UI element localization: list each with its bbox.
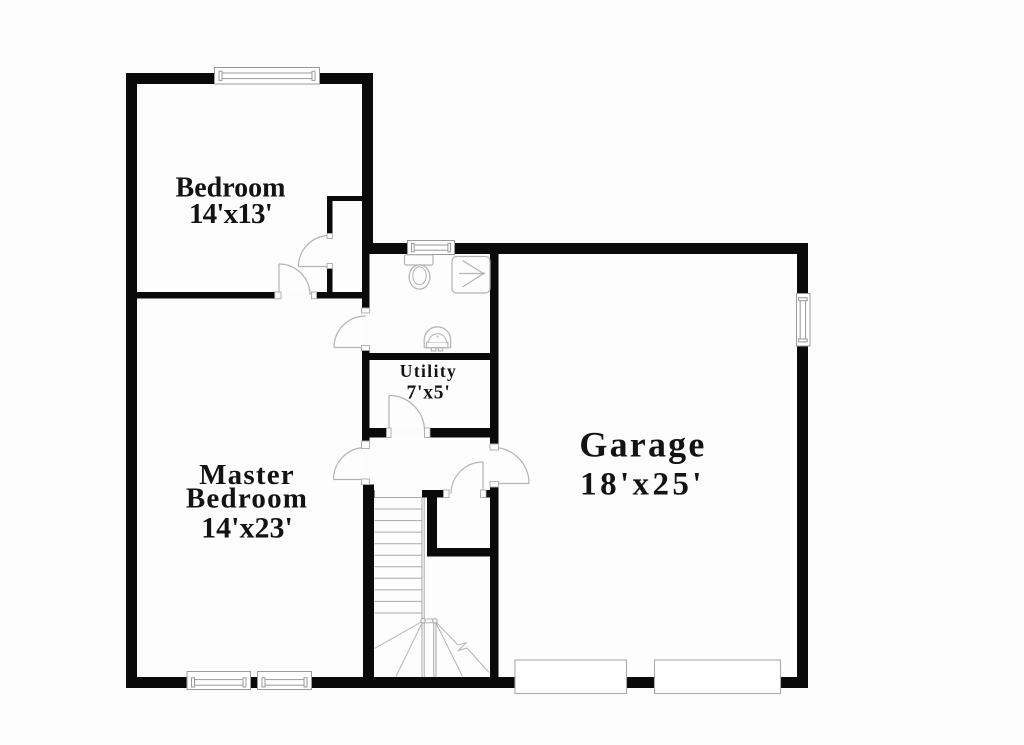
svg-text:Bedroom: Bedroom	[186, 483, 308, 515]
svg-text:7'x5': 7'x5'	[406, 383, 450, 404]
svg-text:14'x23': 14'x23'	[201, 512, 293, 545]
svg-text:Utility: Utility	[400, 361, 457, 381]
svg-text:Garage: Garage	[579, 425, 706, 465]
svg-text:14'x13': 14'x13'	[189, 198, 272, 230]
svg-text:18'x25': 18'x25'	[580, 467, 705, 503]
